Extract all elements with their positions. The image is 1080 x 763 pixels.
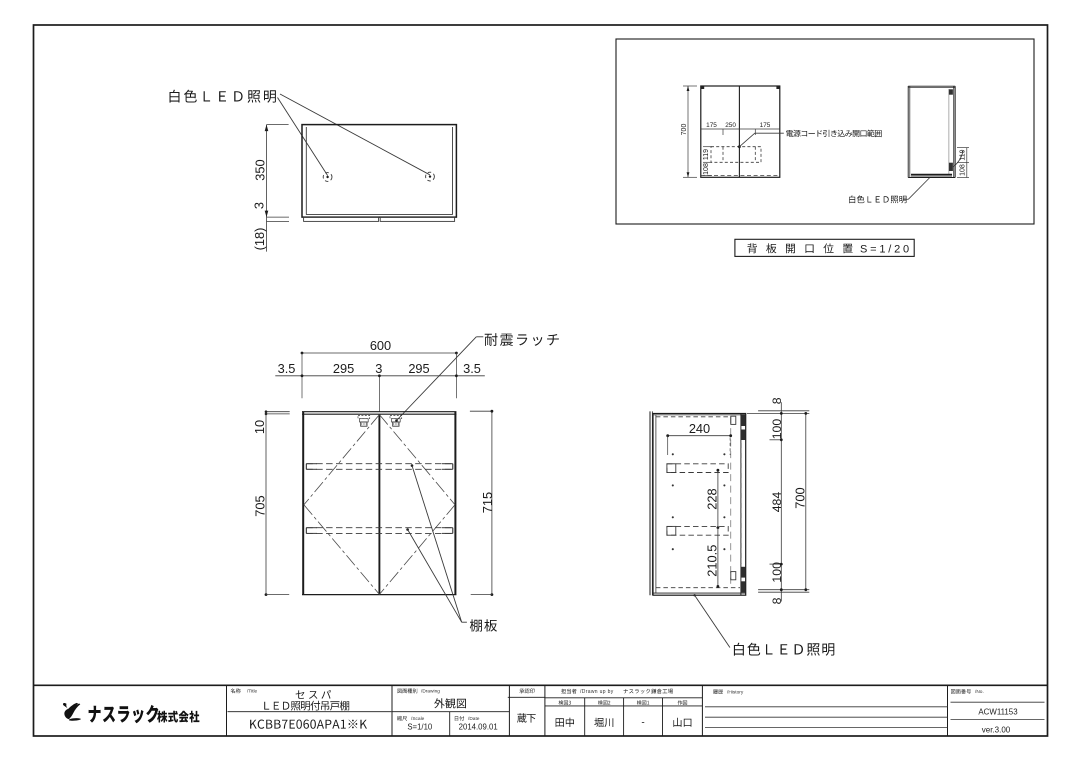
- svg-text:8: 8: [770, 597, 784, 604]
- svg-text:3.5: 3.5: [278, 361, 296, 376]
- svg-text:ACW11153: ACW11153: [978, 707, 1018, 716]
- svg-text:228: 228: [705, 488, 720, 509]
- svg-text:108: 108: [960, 164, 967, 176]
- svg-text:3.5: 3.5: [463, 361, 481, 376]
- svg-text:/Drawn up by: /Drawn up by: [580, 689, 614, 695]
- svg-text:/Title: /Title: [247, 689, 258, 695]
- svg-text:S=1/20: S=1/20: [860, 244, 912, 256]
- svg-text:715: 715: [480, 492, 495, 513]
- svg-text:484: 484: [770, 492, 784, 513]
- svg-text:100: 100: [770, 562, 784, 583]
- svg-text:3: 3: [252, 202, 267, 209]
- svg-text:705: 705: [253, 495, 268, 516]
- svg-text:(18): (18): [252, 228, 267, 251]
- svg-text:2014.09.01: 2014.09.01: [459, 723, 498, 732]
- svg-text:8: 8: [770, 397, 784, 404]
- svg-text:210.5: 210.5: [705, 545, 720, 577]
- svg-text:3: 3: [375, 361, 382, 376]
- svg-text:350: 350: [252, 159, 267, 180]
- svg-text:700: 700: [792, 487, 807, 508]
- svg-text:250: 250: [725, 122, 736, 129]
- svg-text:700: 700: [681, 124, 688, 136]
- svg-text:S=1/10: S=1/10: [407, 723, 433, 732]
- svg-text:600: 600: [370, 338, 391, 353]
- svg-text:/Drawing: /Drawing: [421, 689, 440, 695]
- svg-text:240: 240: [689, 421, 710, 436]
- svg-text:108: 108: [703, 163, 710, 175]
- svg-text:175: 175: [760, 122, 771, 129]
- svg-text:/Date: /Date: [468, 716, 480, 722]
- svg-text:295: 295: [333, 361, 354, 376]
- svg-text:/Scale: /Scale: [411, 716, 425, 722]
- svg-text:175: 175: [706, 122, 717, 129]
- svg-text:/History: /History: [727, 689, 744, 695]
- svg-text:119: 119: [703, 149, 710, 160]
- svg-text:100: 100: [770, 419, 784, 440]
- svg-text:-: -: [641, 718, 644, 729]
- svg-text:10: 10: [252, 420, 267, 434]
- svg-text:/No.: /No.: [975, 689, 984, 695]
- svg-text:ver.3.00: ver.3.00: [982, 726, 1011, 735]
- svg-text:295: 295: [408, 361, 429, 376]
- svg-text:119: 119: [960, 149, 967, 160]
